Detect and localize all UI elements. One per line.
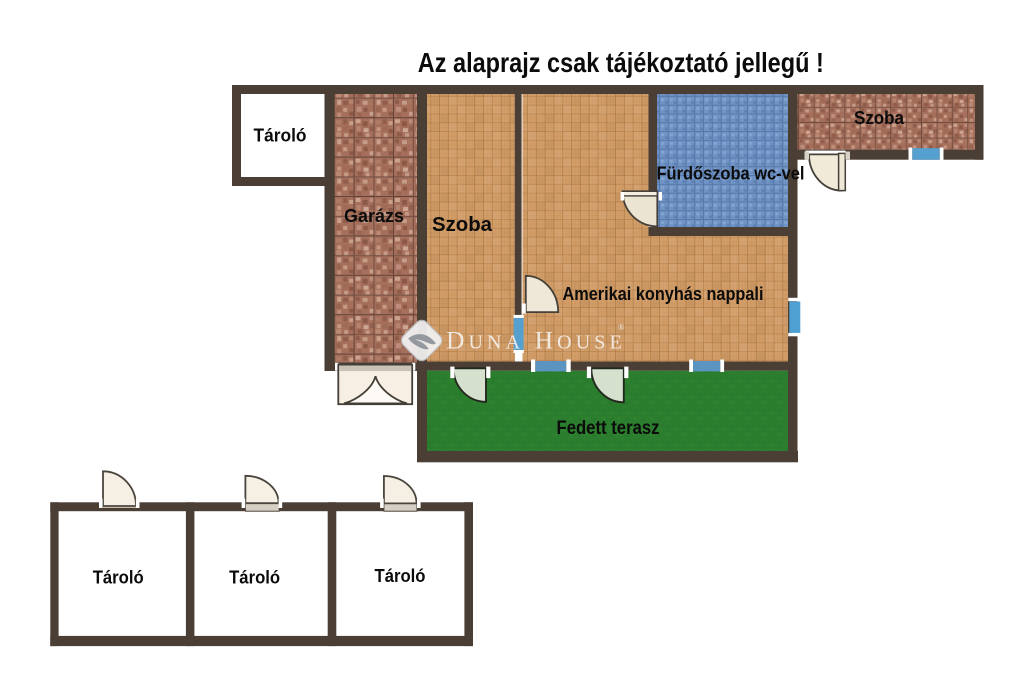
svg-text:Tároló: Tároló bbox=[93, 566, 144, 587]
svg-text:Fürdőszoba wc-vel: Fürdőszoba wc-vel bbox=[657, 164, 805, 184]
svg-text:Fedett terasz: Fedett terasz bbox=[557, 418, 660, 439]
svg-text:Tároló: Tároló bbox=[375, 565, 426, 586]
svg-text:Szoba: Szoba bbox=[854, 107, 905, 128]
svg-text:Tároló: Tároló bbox=[229, 567, 280, 588]
svg-text:®: ® bbox=[618, 322, 625, 332]
svg-text:Amerikai konyhás nappali: Amerikai konyhás nappali bbox=[563, 283, 764, 304]
svg-text:Szoba: Szoba bbox=[432, 214, 493, 236]
svg-text:Tároló: Tároló bbox=[254, 124, 307, 145]
svg-text:Az alaprajz csak tájékoztató j: Az alaprajz csak tájékoztató jellegű ! bbox=[418, 47, 824, 78]
svg-text:Garázs: Garázs bbox=[344, 205, 404, 226]
